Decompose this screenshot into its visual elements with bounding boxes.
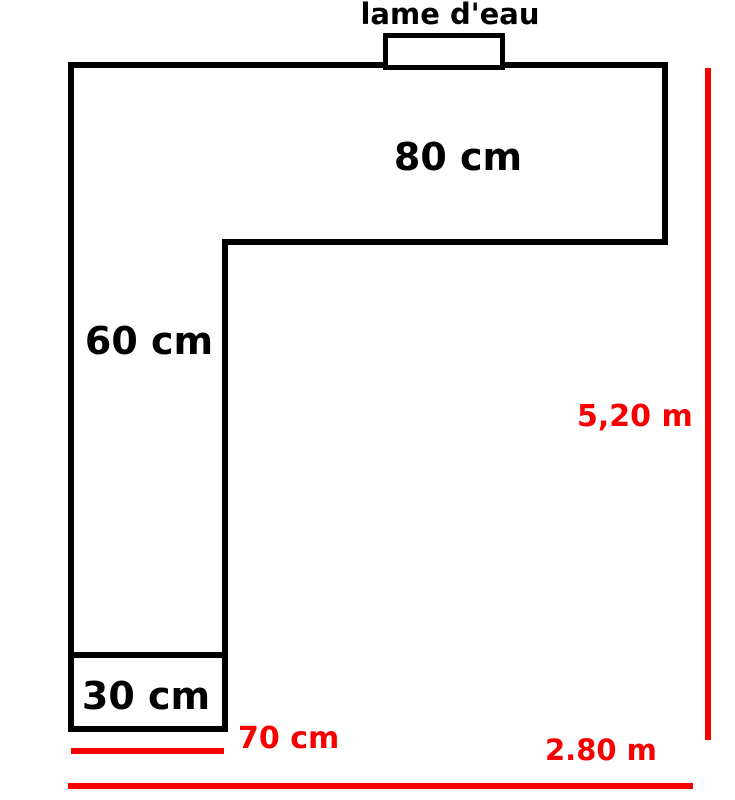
outline-step-edge bbox=[222, 239, 668, 245]
outline-left-edge bbox=[68, 62, 74, 732]
depth-60cm-label: 60 cm bbox=[29, 322, 269, 360]
water-blade-label: lame d'eau bbox=[330, 0, 570, 29]
total-height-dimension-line bbox=[705, 68, 711, 740]
total-width-280m-label: 2.80 m bbox=[545, 736, 657, 765]
total-width-dimension-line bbox=[68, 783, 693, 789]
outline-inner-vertical-edge bbox=[222, 239, 228, 732]
width-70cm-dimension-line bbox=[71, 748, 224, 754]
outline-right-edge bbox=[662, 62, 668, 245]
total-height-520m-label: 5,20 m bbox=[577, 402, 693, 432]
width-70cm-label: 70 cm bbox=[238, 724, 339, 754]
outline-bottom-edge bbox=[68, 726, 228, 732]
outline-top-edge bbox=[68, 62, 668, 68]
depth-80cm-label: 80 cm bbox=[338, 138, 578, 176]
water-blade-box bbox=[383, 33, 505, 70]
bottom-box-separator-edge bbox=[68, 652, 228, 658]
depth-30cm-label: 30 cm bbox=[26, 677, 266, 715]
diagram-canvas: lame d'eau 80 cm 60 cm 30 cm 70 cm 5,20 … bbox=[0, 0, 735, 800]
